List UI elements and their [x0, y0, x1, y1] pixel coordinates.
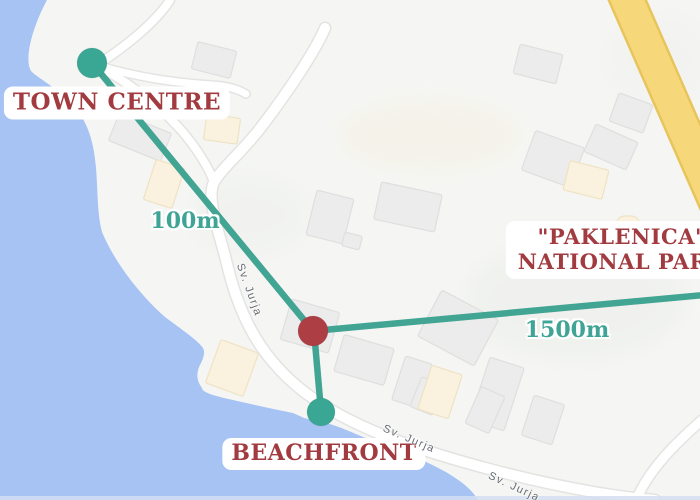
property-marker[interactable] — [298, 316, 328, 346]
label-town-centre: TOWN CENTRE — [4, 87, 230, 120]
label-park-line1: "PAKLENICA" — [537, 224, 700, 249]
map-viewport[interactable]: TOWN CENTRE BEACHFRONT "PAKLENICA" NATIO… — [0, 0, 700, 500]
label-park-line2: NATIONAL PARK — [518, 249, 700, 274]
town-centre-marker[interactable] — [77, 48, 107, 78]
label-national-park: "PAKLENICA" NATIONAL PARK — [506, 221, 700, 279]
label-beachfront: BEACHFRONT — [222, 438, 425, 470]
beachfront-marker[interactable] — [307, 398, 335, 426]
map-edge-strip — [0, 496, 700, 500]
label-distance-1500m: 1500m — [525, 317, 610, 343]
terrain-patch — [340, 100, 520, 170]
label-distance-100m: 100m — [150, 208, 219, 234]
